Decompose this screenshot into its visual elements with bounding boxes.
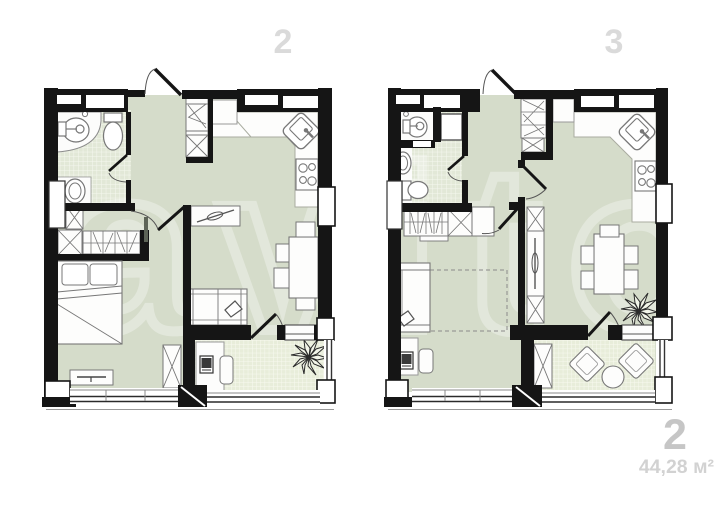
svg-text:3: 3 bbox=[605, 23, 624, 61]
svg-text:44,28 м²: 44,28 м² bbox=[639, 456, 715, 478]
svg-text:2: 2 bbox=[663, 411, 687, 459]
svg-text:2: 2 bbox=[274, 23, 293, 61]
